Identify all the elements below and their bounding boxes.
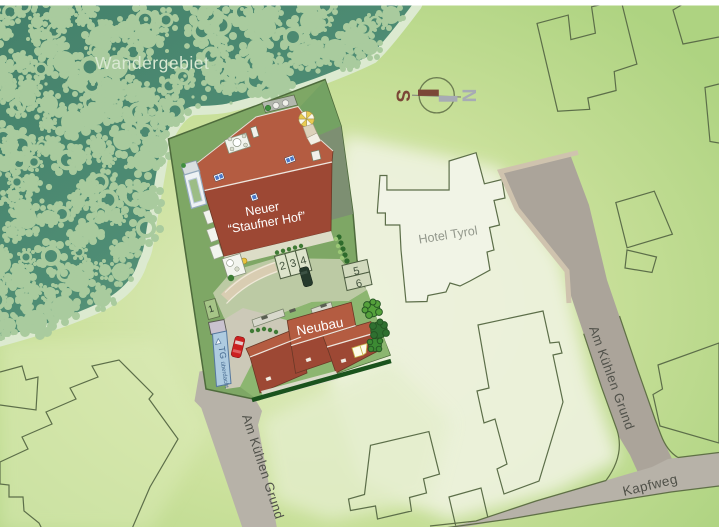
svg-text:Wandergebiet: Wandergebiet: [95, 53, 209, 73]
svg-text:S: S: [391, 89, 412, 102]
svg-text:N: N: [457, 89, 478, 103]
